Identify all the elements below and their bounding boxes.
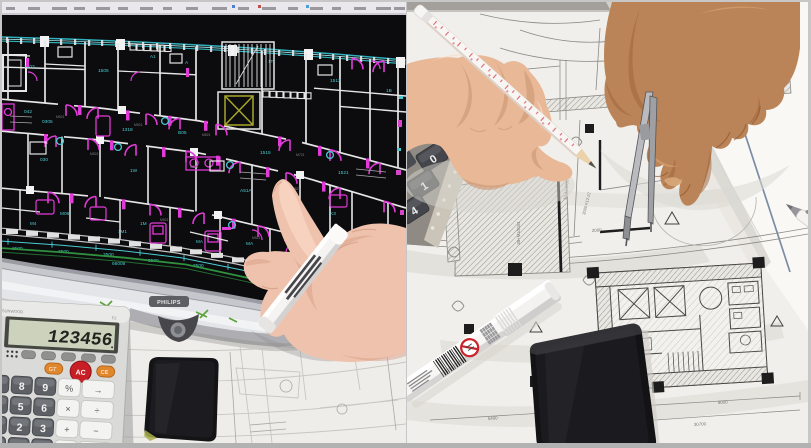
svg-text:5400: 5400 <box>488 415 499 421</box>
svg-text:1B+M1/8181: 1B+M1/8181 <box>516 220 521 245</box>
svg-text:9000: 9000 <box>718 399 729 405</box>
svg-text:→: → <box>93 385 103 395</box>
svg-text:1318: 1318 <box>122 127 133 133</box>
svg-text:×: × <box>65 404 71 414</box>
svg-text:1M1: 1M1 <box>118 229 127 234</box>
svg-text:030: 030 <box>40 157 48 163</box>
svg-text:0305: 0305 <box>42 119 53 125</box>
svg-text:30700: 30700 <box>694 421 707 427</box>
svg-text:8: 8 <box>18 381 25 393</box>
svg-text:%: % <box>65 383 74 393</box>
svg-text:A1: A1 <box>150 54 156 59</box>
svg-text:CE: CE <box>100 370 108 376</box>
svg-text:6: 6 <box>41 402 48 414</box>
svg-text:1512: 1512 <box>330 78 341 84</box>
svg-text:M521: M521 <box>160 218 169 222</box>
svg-text:1T: 1T <box>268 59 274 64</box>
svg-text:K3: K3 <box>330 211 336 217</box>
svg-text:1503: 1503 <box>24 64 35 70</box>
svg-text:9: 9 <box>42 382 49 394</box>
svg-text:1M: 1M <box>140 221 147 227</box>
svg-text:B05: B05 <box>178 130 187 136</box>
svg-text:042: 042 <box>24 109 32 115</box>
svg-text:AC: AC <box>75 369 85 377</box>
svg-text:M721: M721 <box>296 153 305 157</box>
svg-text:123456: 123456 <box>46 328 114 351</box>
svg-text:MA: MA <box>196 239 204 244</box>
svg-text:GT: GT <box>49 367 58 373</box>
svg-text:2: 2 <box>16 422 23 434</box>
svg-text:M521: M521 <box>134 123 143 127</box>
svg-text:M521: M521 <box>202 133 211 137</box>
svg-text:MA: MA <box>246 241 254 247</box>
svg-text:1W: 1W <box>130 168 138 174</box>
svg-text:1B: 1B <box>386 88 392 94</box>
svg-text:M521: M521 <box>252 236 261 240</box>
svg-text:5: 5 <box>17 401 24 413</box>
svg-text:1515: 1515 <box>260 150 271 156</box>
svg-text:3: 3 <box>40 423 47 435</box>
svg-text:M521: M521 <box>190 165 199 169</box>
svg-text:1521: 1521 <box>338 170 349 176</box>
svg-text:M4: M4 <box>30 221 37 226</box>
svg-text:+: + <box>64 424 70 434</box>
svg-text:÷: ÷ <box>94 405 100 415</box>
svg-text:PHILIPS: PHILIPS <box>157 300 181 306</box>
svg-text:M06: M06 <box>60 211 70 217</box>
svg-text:1505: 1505 <box>98 68 109 74</box>
svg-text:M521: M521 <box>90 152 99 156</box>
svg-text:2000: 2000 <box>592 227 603 233</box>
svg-text:−: − <box>93 426 99 436</box>
svg-text:A51A: A51A <box>240 188 253 194</box>
svg-text:M521: M521 <box>56 115 65 119</box>
